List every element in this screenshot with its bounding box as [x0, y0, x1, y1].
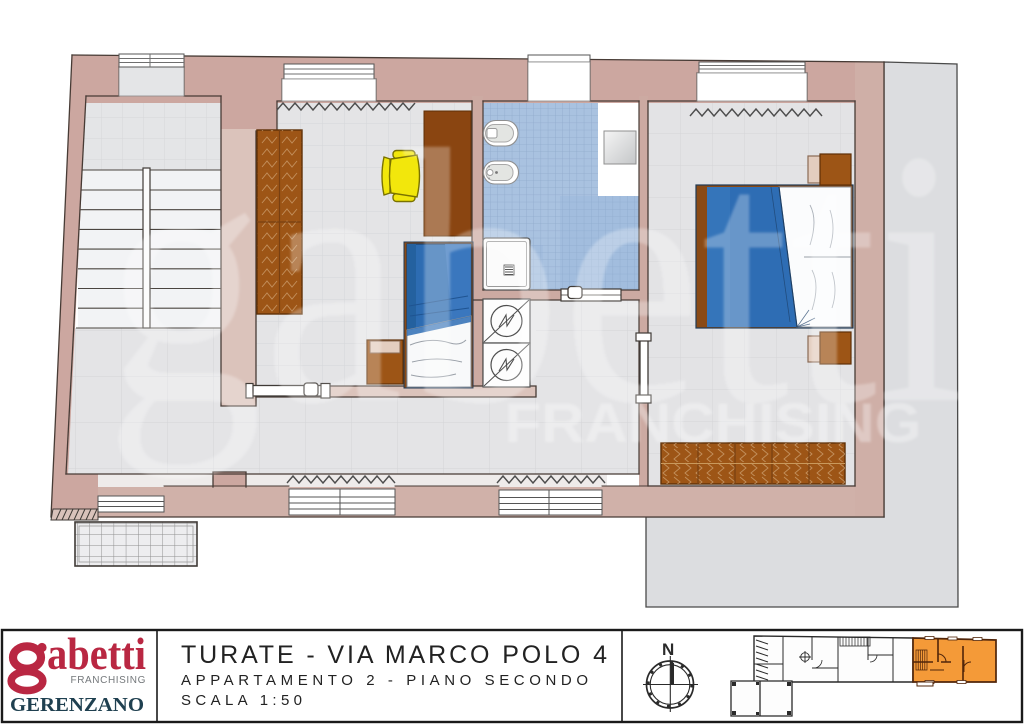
- svg-text:TURATE - VIA MARCO POLO 4: TURATE - VIA MARCO POLO 4: [181, 641, 607, 669]
- svg-text:N: N: [662, 640, 674, 659]
- svg-text:GERENZANO: GERENZANO: [10, 694, 144, 716]
- svg-text:SCALA 1:50: SCALA 1:50: [181, 692, 302, 709]
- svg-text:FRANCHISING: FRANCHISING: [71, 675, 147, 686]
- svg-text:abetti: abetti: [47, 628, 146, 679]
- svg-text:FRANCHISING: FRANCHISING: [505, 391, 922, 454]
